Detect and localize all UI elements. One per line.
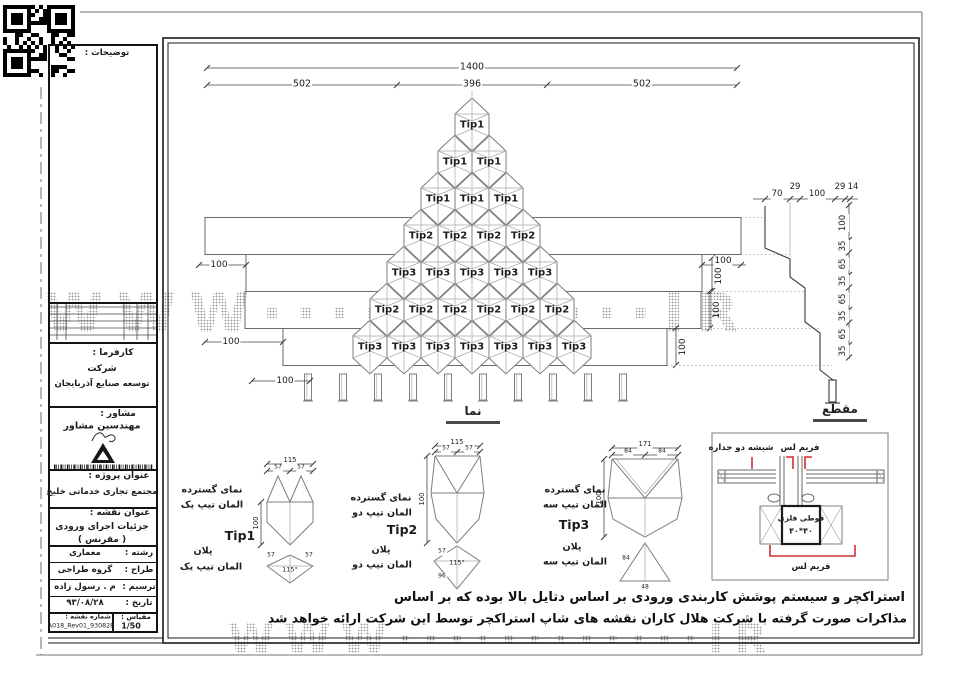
dim-label: 100 <box>419 493 427 506</box>
detail-tip3-plan-label-2: المان تیپ سه <box>543 558 607 569</box>
general-note-line-2: مذاکرات صورت گرفته با شرکت هلال کاران نق… <box>268 611 907 626</box>
section-dim-14: 14 <box>847 183 860 193</box>
dim-label: 100 <box>209 260 228 270</box>
dim-label: 84 <box>657 449 667 456</box>
dim-label: 57 <box>304 553 314 560</box>
element-type-label: Tip3 <box>358 341 382 353</box>
dim-label: 35 <box>839 240 849 253</box>
section-dim-29a: 29 <box>789 183 802 193</box>
glazing-frameless-bottom-label: فریم لس <box>792 563 831 573</box>
element-type-label: Tip3 <box>460 267 484 279</box>
field-value-date: ۹۳/۰۸/۲۸ <box>66 599 103 609</box>
field-value-drafter: م . رسول زاده <box>54 583 115 593</box>
detail-tip2-plan-label-1: پلان <box>372 546 391 557</box>
drawing-title-label: عنوان نقشه : <box>90 508 151 518</box>
section-dim-29b: 29 <box>834 183 847 193</box>
dim-label: 65 <box>839 327 849 340</box>
notes-section-label: توضیحات : <box>85 49 129 59</box>
glazing-glass-label: شیشه دو جداره <box>708 444 773 454</box>
dim-label: 100 <box>712 301 722 318</box>
drawing-name: جزئیات اجرای ورودی <box>55 522 149 532</box>
dim-label: 65 <box>839 292 849 305</box>
dim-label: 171 <box>638 441 653 449</box>
dim-label: 100 <box>714 267 724 284</box>
dim-part-left: 502 <box>292 80 312 91</box>
element-type-label: Tip3 <box>392 341 416 353</box>
drawing-name-sub: ( مقرنس ) <box>78 535 126 545</box>
dim-label: 100 <box>253 517 261 530</box>
detail-tip1-plan-label-1: پلان <box>194 547 213 558</box>
dim-label: 100 <box>275 376 294 386</box>
element-type-label: Tip1 <box>443 156 467 168</box>
dim-part-center: 396 <box>462 80 482 91</box>
element-type-label: Tip2 <box>375 304 399 316</box>
field-label-discipline: رشته : <box>125 549 153 559</box>
dim-label: 84 <box>623 449 633 456</box>
consultant-label: مشاور : <box>100 409 136 419</box>
dim-label: 57 <box>464 446 474 453</box>
detail-tip1-view-label-1: نمای گسترده <box>182 486 243 497</box>
element-type-label: Tip2 <box>409 304 433 316</box>
dim-label: 100 <box>678 338 688 355</box>
element-type-label: Tip1 <box>477 156 501 168</box>
general-note-line-1: استراکچر و سیستم پوشش کاربندی ورودی بر ا… <box>394 590 905 606</box>
dim-label: 57 <box>437 549 447 556</box>
consultant-name: مهندسین مشاور <box>63 422 140 433</box>
element-type-label: Tip3 <box>460 341 484 353</box>
dim-label: 35 <box>839 345 849 358</box>
detail-tip1-plan-label-2: المان تیپ یک <box>180 563 242 574</box>
element-type-label: Tip2 <box>477 230 501 242</box>
dim-label: 65 <box>839 257 849 270</box>
dim-label: 57 <box>296 465 306 472</box>
dim-part-right: 502 <box>632 80 652 91</box>
element-type-label: Tip1 <box>494 193 518 205</box>
dim-label: 100 <box>596 492 604 505</box>
dim-label: 100 <box>713 256 732 266</box>
dim-label: 115° <box>449 559 465 566</box>
dim-label: 57 <box>273 465 283 472</box>
dim-label: 48 <box>640 585 650 592</box>
scale-label: مقیاس : <box>121 613 151 621</box>
element-type-label: Tip3 <box>562 341 586 353</box>
dim-label: 115 <box>450 439 465 447</box>
dim-label: 57 <box>441 446 451 453</box>
element-type-label: Tip2 <box>511 304 535 316</box>
client-company-line2: توسعه صنایع آذربایجان <box>55 380 150 390</box>
dim-label: 57 <box>266 553 276 560</box>
drawing-sheet: WWW············IR WWW············IR توضی… <box>0 0 960 678</box>
dim-label: 100 <box>839 213 849 231</box>
element-type-label: Tip2 <box>443 304 467 316</box>
element-type-label: Tip1 <box>460 193 484 205</box>
glazing-box-label-1: قوطی فلزی <box>778 515 824 524</box>
detail-tip2-plan-label-2: المان تیپ دو <box>352 561 412 572</box>
element-type-label: Tip2 <box>545 304 569 316</box>
field-label-drafter: ترسیم : <box>122 583 155 593</box>
section-caption: مقطع <box>822 403 858 417</box>
field-label-designer: طراح : <box>125 566 154 576</box>
dim-label: 84 <box>621 556 631 563</box>
dim-label: 96 <box>437 574 447 581</box>
project-title-label: عنوان پروژه : <box>88 471 149 481</box>
element-type-label: Tip1 <box>460 119 484 131</box>
glazing-box-label-2: ۴۰*۴۰ <box>789 526 813 535</box>
element-type-label: Tip2 <box>477 304 501 316</box>
client-label: کارفرما : <box>93 348 134 358</box>
detail-tip1-id: Tip1 <box>225 529 255 543</box>
dim-total-width: 1400 <box>459 63 485 74</box>
detail-tip3-plan-label-1: پلان <box>563 543 582 554</box>
section-dim-100: 100 <box>808 190 826 200</box>
element-type-label: Tip3 <box>426 267 450 279</box>
detail-tip1-view-label-2: المان تیپ یک <box>181 501 243 512</box>
field-value-designer: گروه طراحی <box>58 566 112 576</box>
element-type-label: Tip3 <box>494 341 518 353</box>
element-type-label: Tip2 <box>511 230 535 242</box>
element-type-label: Tip1 <box>426 193 450 205</box>
elevation-caption-underline <box>446 421 500 424</box>
detail-tip2-view-label-1: نمای گسترده <box>351 494 412 505</box>
glazing-frameless-top-label: فریم لس <box>781 444 820 454</box>
sheet-number-value: A018_Rev01_930828 <box>48 622 114 629</box>
section-caption-underline <box>813 419 867 422</box>
element-type-label: Tip3 <box>392 267 416 279</box>
project-name: مجتمع تجاری خدماتی خلیج <box>47 488 158 498</box>
field-value-discipline: معماری <box>69 549 101 559</box>
detail-tip2-view-label-2: المان تیپ دو <box>352 509 412 520</box>
sheet-number-label: شماره نقشه : <box>65 613 111 620</box>
client-company-line1: شرکت <box>87 364 116 374</box>
detail-tip3-id: Tip3 <box>559 518 589 532</box>
field-label-date: تاریخ : <box>126 599 153 609</box>
dim-label: 115° <box>282 566 298 573</box>
elevation-caption: نما <box>464 405 481 419</box>
dim-label: 35 <box>839 275 849 288</box>
detail-tip2-id: Tip2 <box>387 523 417 537</box>
dim-label: 100 <box>221 337 240 347</box>
element-type-label: Tip3 <box>528 267 552 279</box>
dim-label: 35 <box>839 310 849 323</box>
scale-value: 1/50 <box>121 621 141 630</box>
section-dim-70: 70 <box>771 190 784 200</box>
element-type-label: Tip3 <box>528 341 552 353</box>
element-type-label: Tip3 <box>494 267 518 279</box>
element-type-label: Tip2 <box>443 230 467 242</box>
element-type-label: Tip3 <box>426 341 450 353</box>
element-type-label: Tip2 <box>409 230 433 242</box>
